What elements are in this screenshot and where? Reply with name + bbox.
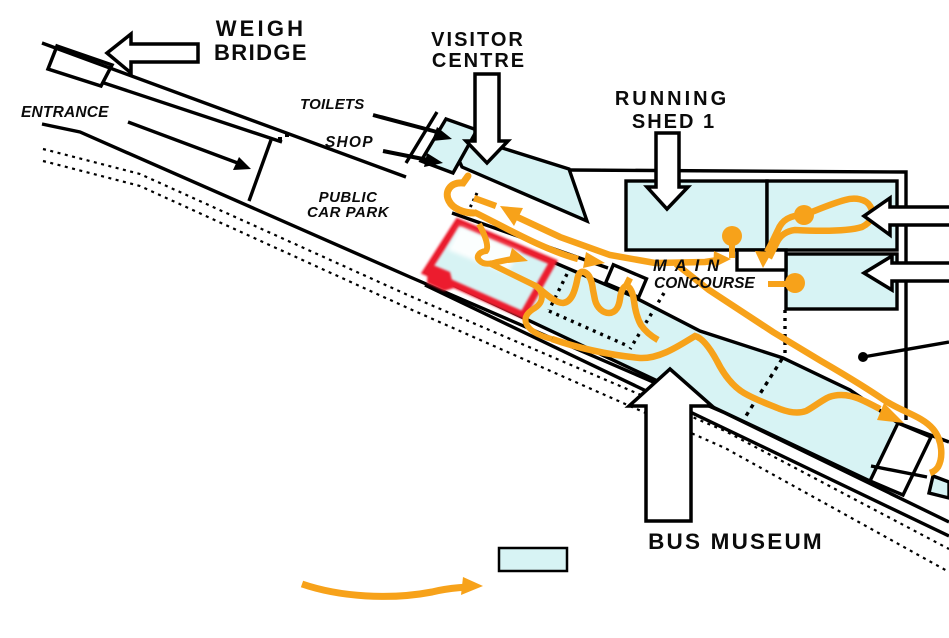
svg-text:CONCOURSE: CONCOURSE — [654, 275, 755, 292]
svg-text:ENTRANCE: ENTRANCE — [21, 104, 109, 121]
svg-text:RUNNING: RUNNING — [615, 88, 729, 110]
svg-text:MAIN: MAIN — [653, 257, 727, 275]
svg-text:TOILETS: TOILETS — [300, 96, 364, 113]
svg-text:BUS MUSEUM: BUS MUSEUM — [648, 529, 824, 554]
svg-text:CENTRE: CENTRE — [432, 50, 526, 72]
svg-text:WEIGH: WEIGH — [216, 16, 307, 41]
svg-text:SHED 1: SHED 1 — [632, 111, 716, 133]
svg-text:SHOP: SHOP — [325, 134, 374, 151]
svg-text:VISITOR: VISITOR — [431, 29, 525, 51]
svg-text:CAR PARK: CAR PARK — [307, 204, 390, 221]
svg-text:BRIDGE: BRIDGE — [214, 40, 308, 65]
